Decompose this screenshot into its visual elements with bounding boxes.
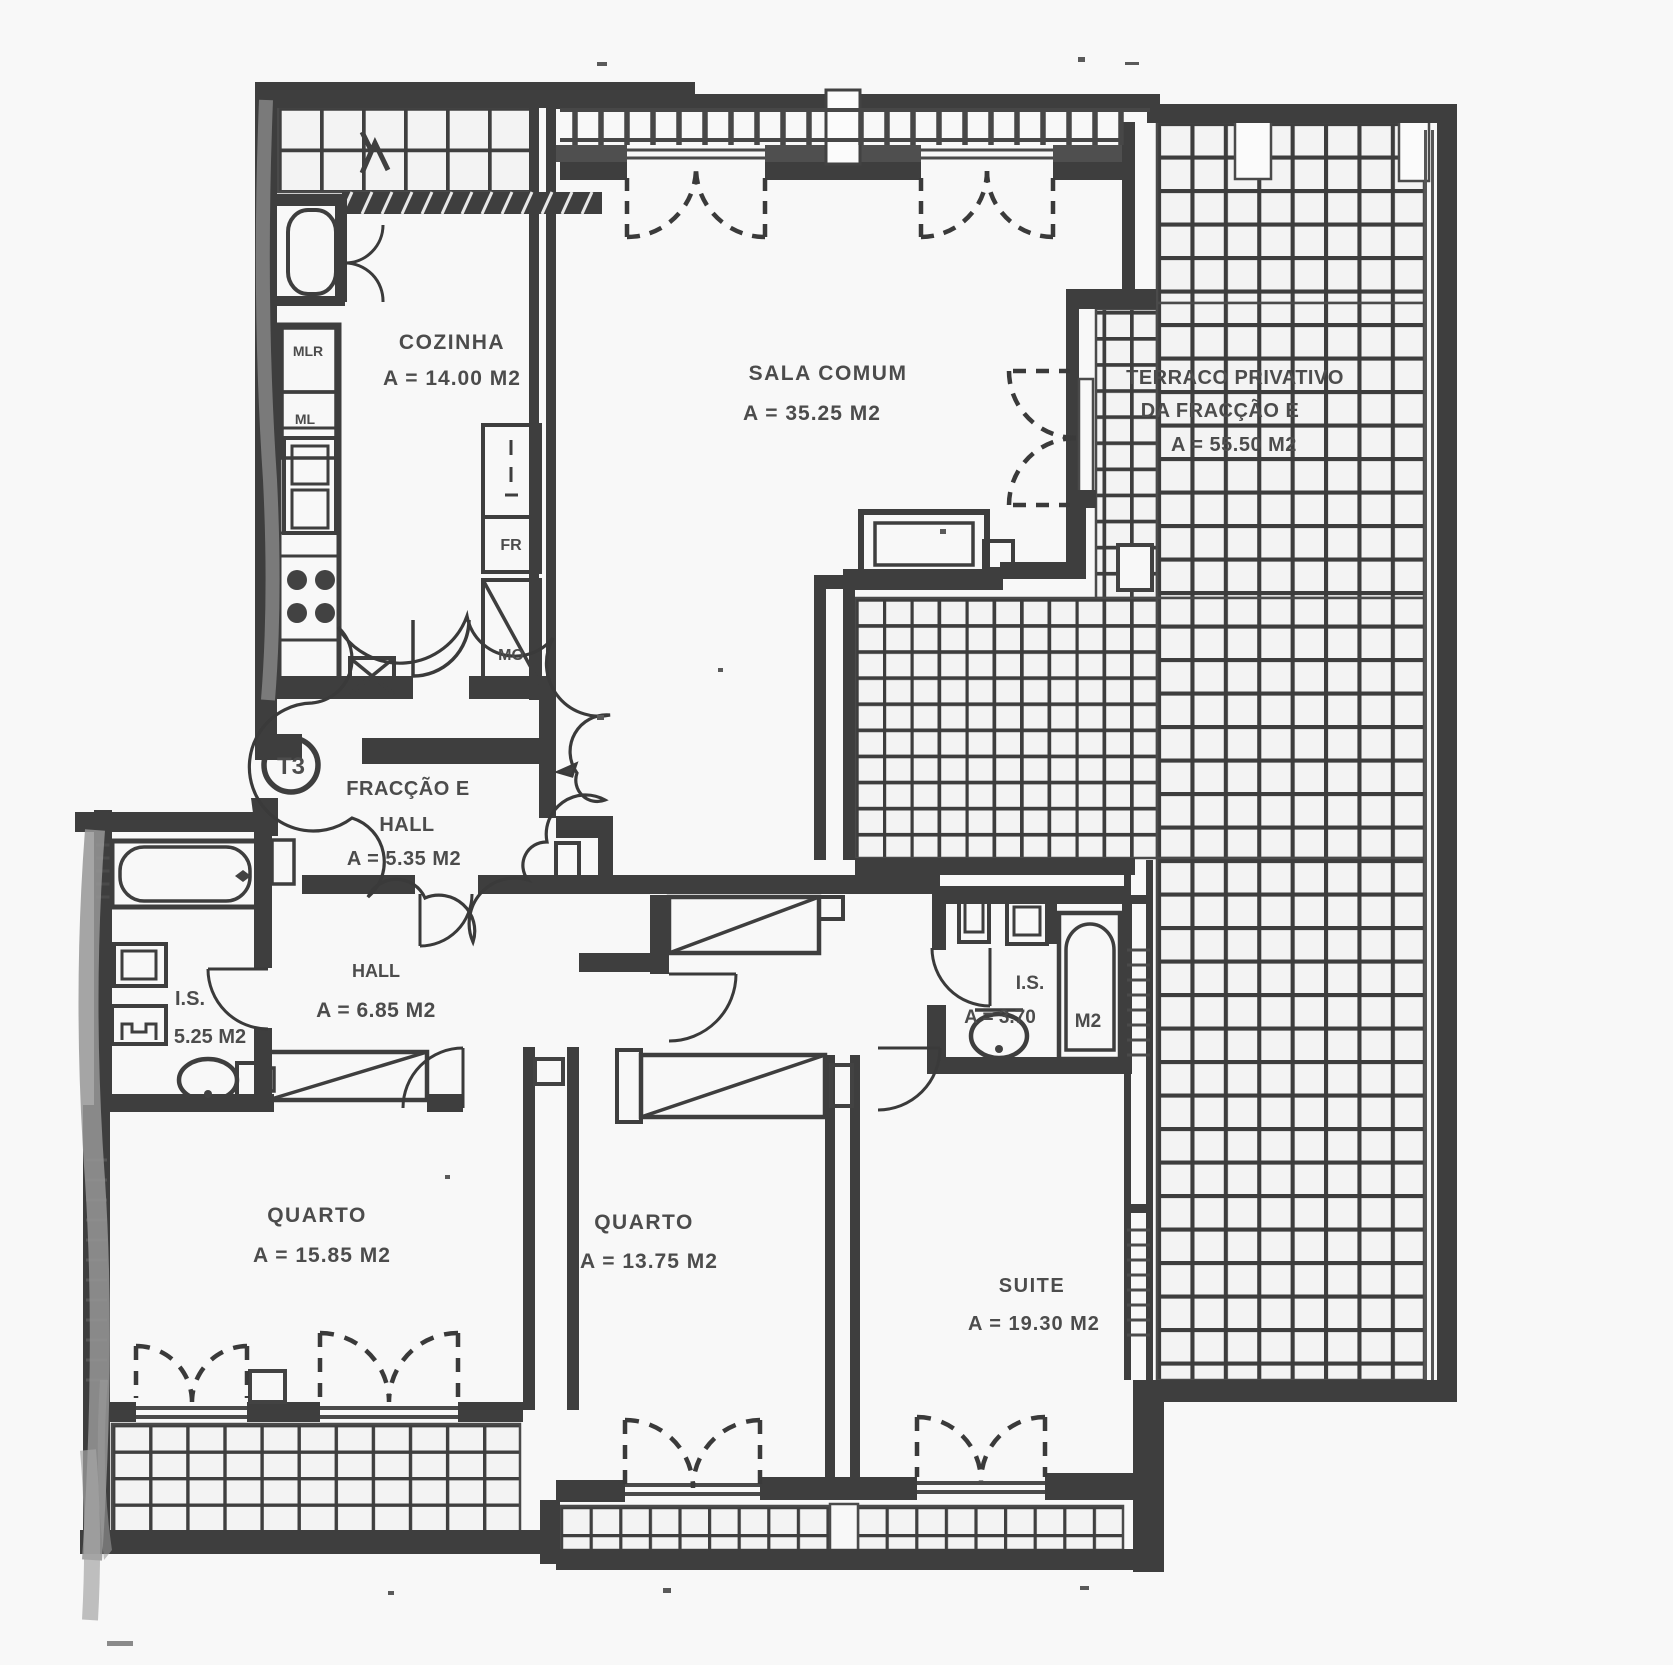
svg-text:M2: M2 — [1075, 1011, 1101, 1032]
svg-text:5.25 M2: 5.25 M2 — [174, 1026, 246, 1048]
svg-text:A = 55.50 M2: A = 55.50 M2 — [1171, 434, 1297, 456]
svg-text:A = 5.35 M2: A = 5.35 M2 — [347, 848, 461, 870]
svg-text:I.S.: I.S. — [175, 988, 205, 1010]
svg-text:A = 19.30 M2: A = 19.30 M2 — [968, 1313, 1100, 1335]
svg-text:I.S.: I.S. — [1016, 973, 1045, 994]
svg-text:HALL: HALL — [379, 814, 434, 836]
svg-text:A = 3.70: A = 3.70 — [964, 1007, 1036, 1028]
svg-text:FR: FR — [500, 537, 522, 554]
svg-text:A = 6.85 M2: A = 6.85 M2 — [316, 999, 436, 1022]
svg-text:MLR: MLR — [293, 343, 323, 359]
svg-text:HALL: HALL — [352, 961, 400, 981]
svg-text:A = 15.85 M2: A = 15.85 M2 — [253, 1244, 391, 1267]
svg-text:FRACÇÃO E: FRACÇÃO E — [346, 777, 469, 800]
svg-text:A = 35.25 M2: A = 35.25 M2 — [743, 402, 881, 425]
svg-text:A = 14.00 M2: A = 14.00 M2 — [383, 367, 521, 390]
svg-text:T3: T3 — [277, 753, 305, 780]
svg-text:ML: ML — [295, 411, 316, 427]
svg-text:DA FRACÇÃO E: DA FRACÇÃO E — [1141, 399, 1300, 422]
svg-text:QUARTO: QUARTO — [267, 1204, 367, 1227]
svg-text:COZINHA: COZINHA — [399, 331, 505, 354]
svg-text:QUARTO: QUARTO — [594, 1211, 694, 1234]
svg-text:A = 13.75 M2: A = 13.75 M2 — [580, 1250, 718, 1273]
svg-text:MO: MO — [498, 647, 524, 664]
svg-text:SUITE: SUITE — [999, 1275, 1065, 1297]
svg-text:SALA COMUM: SALA COMUM — [749, 362, 908, 385]
svg-text:TERRACO PRIVATIVO: TERRACO PRIVATIVO — [1126, 367, 1344, 389]
